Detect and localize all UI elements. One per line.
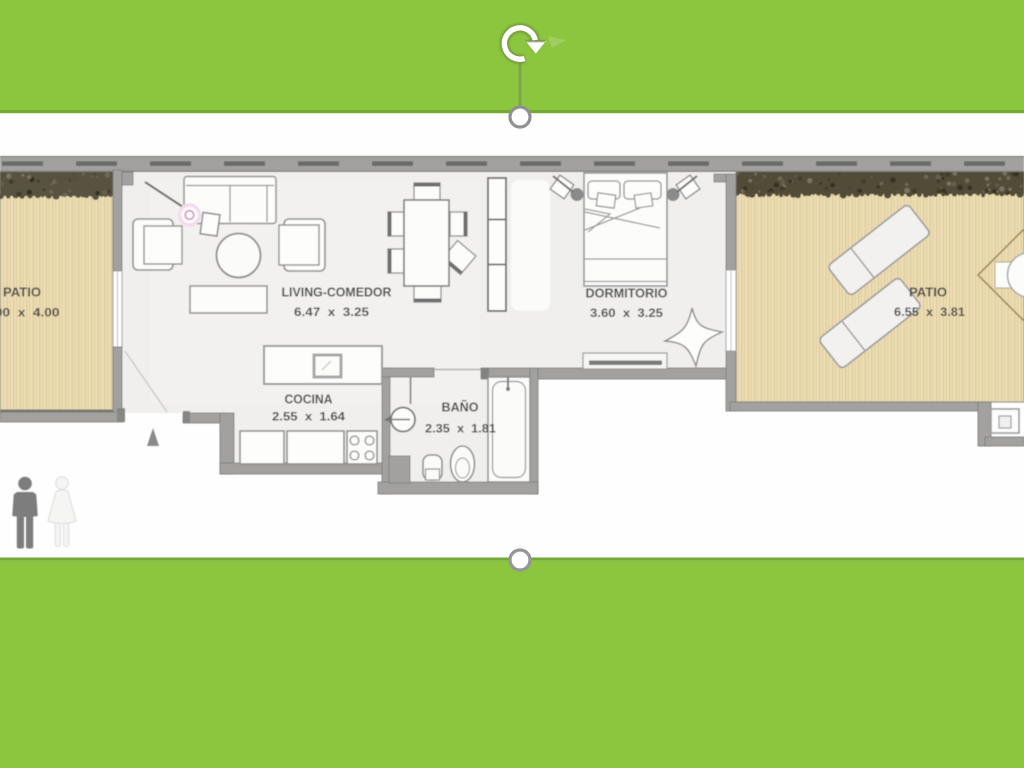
svg-text:3.60 x 3.25: 3.60 x 3.25: [590, 306, 663, 320]
svg-text:2.35 x 1.81: 2.35 x 1.81: [425, 422, 496, 436]
svg-text:BAÑO: BAÑO: [442, 400, 479, 415]
svg-text:2.55 x 1.64: 2.55 x 1.64: [272, 410, 345, 424]
svg-text:LIVING-COMEDOR: LIVING-COMEDOR: [282, 285, 393, 300]
svg-text:6.55 x 3.81: 6.55 x 3.81: [894, 305, 965, 319]
svg-text:6.47 x 3.25: 6.47 x 3.25: [294, 305, 369, 319]
svg-text:DORMITORIO: DORMITORIO: [586, 286, 668, 301]
svg-text:PATIO: PATIO: [909, 285, 947, 300]
svg-text:4.00 x 4.00: 4.00 x 4.00: [0, 306, 60, 320]
svg-text:COCINA: COCINA: [285, 392, 334, 407]
svg-text:PATIO: PATIO: [3, 285, 41, 300]
